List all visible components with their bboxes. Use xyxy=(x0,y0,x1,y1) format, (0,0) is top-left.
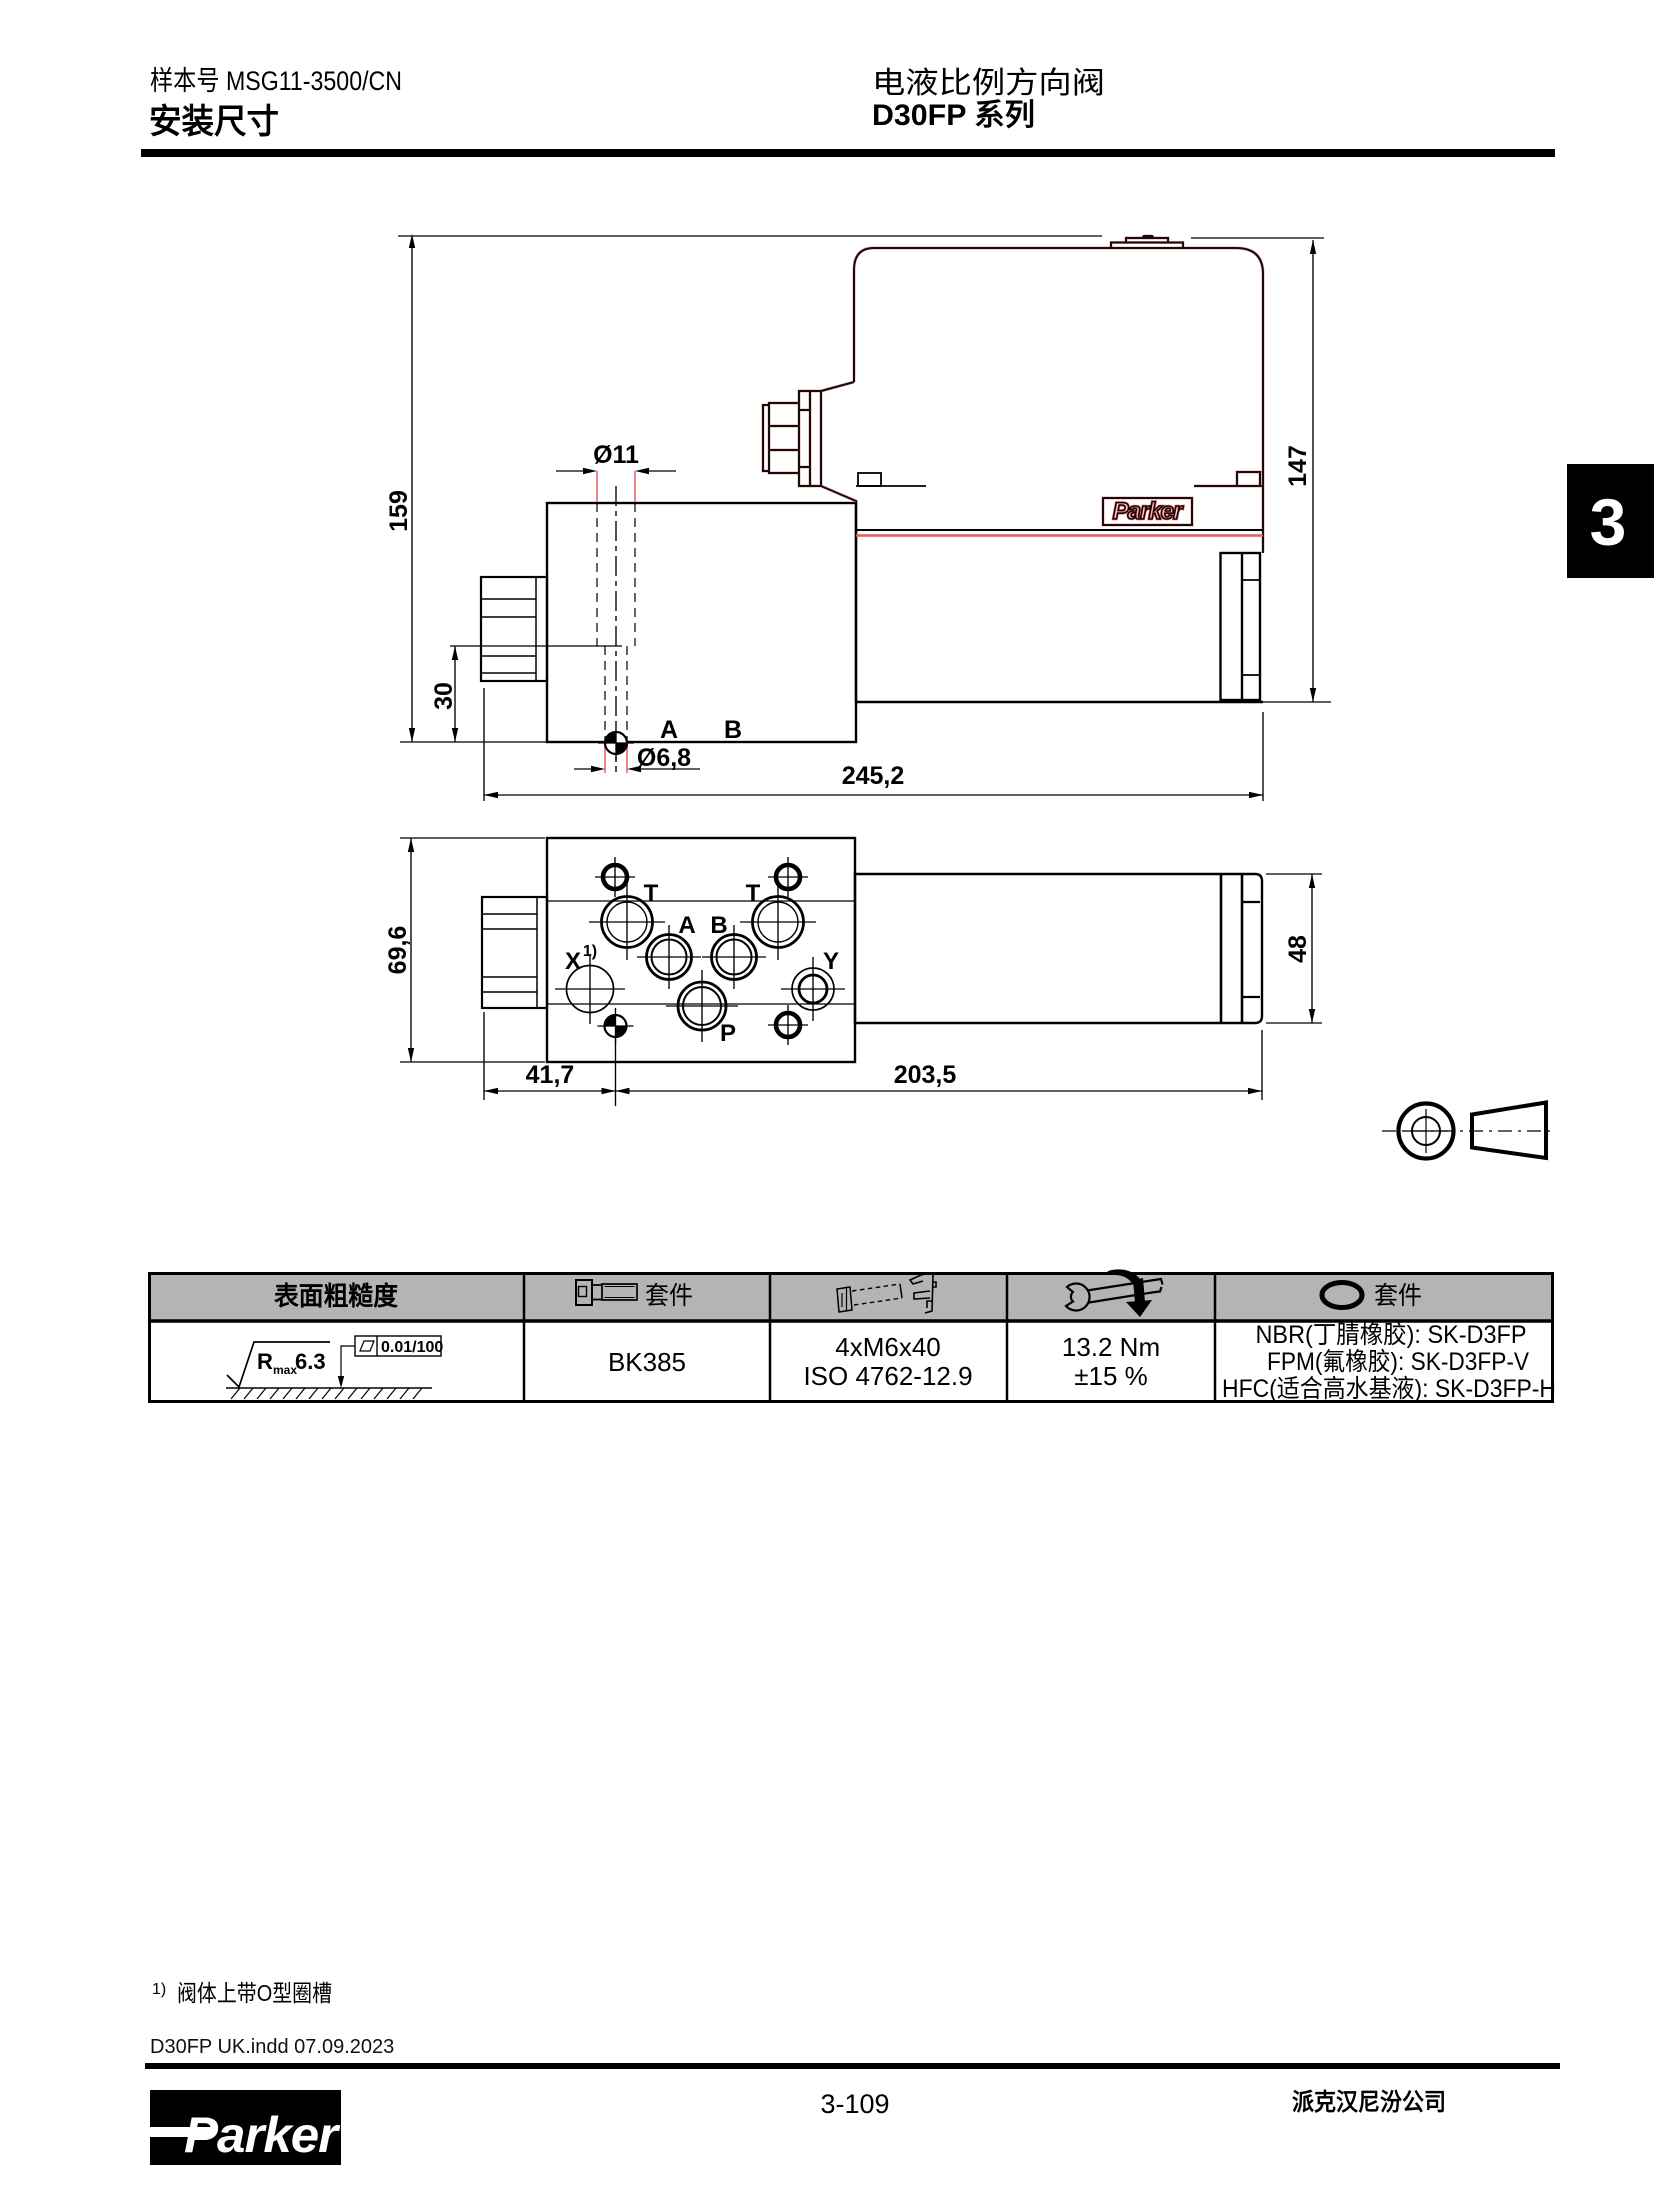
svg-text:B: B xyxy=(724,716,742,744)
svg-text:阀体上带O型圈槽: 阀体上带O型圈槽 xyxy=(177,1980,332,2006)
svg-text:NBR(丁腈橡胶): SK-D3FP: NBR(丁腈橡胶): SK-D3FP xyxy=(1256,1321,1527,1349)
svg-text:样本号 MSG11-3500/CN: 样本号 MSG11-3500/CN xyxy=(150,66,402,96)
svg-text:69,6: 69,6 xyxy=(384,926,412,975)
svg-text:套件: 套件 xyxy=(645,1282,693,1310)
svg-text:表面粗糙度: 表面粗糙度 xyxy=(274,1281,398,1311)
svg-text:max: max xyxy=(273,1363,297,1377)
svg-text:T: T xyxy=(644,880,659,907)
svg-text:0.01/100: 0.01/100 xyxy=(381,1339,443,1356)
svg-text:48: 48 xyxy=(1284,935,1312,963)
svg-text:Y: Y xyxy=(823,948,839,975)
svg-text:30: 30 xyxy=(430,682,458,710)
svg-text:安装尺寸: 安装尺寸 xyxy=(149,103,279,141)
svg-text:A: A xyxy=(678,912,695,939)
svg-text:159: 159 xyxy=(385,490,413,532)
svg-text:P: P xyxy=(720,1020,736,1047)
svg-text:3: 3 xyxy=(1590,485,1627,559)
svg-text:套件: 套件 xyxy=(1374,1282,1422,1310)
svg-text:4xM6x40: 4xM6x40 xyxy=(835,1332,941,1362)
svg-text:±15 %: ±15 % xyxy=(1074,1361,1148,1391)
svg-text:电液比例方向阀: 电液比例方向阀 xyxy=(872,67,1105,100)
svg-text:1): 1) xyxy=(583,943,597,960)
svg-text:HFC(适合高水基液): SK-D3FP-H: HFC(适合高水基液): SK-D3FP-H xyxy=(1222,1375,1556,1403)
svg-text:Ø6,8: Ø6,8 xyxy=(637,744,691,772)
svg-text:D30FP 系列: D30FP 系列 xyxy=(872,99,1035,132)
svg-text:X: X xyxy=(565,948,581,975)
svg-text:6.3: 6.3 xyxy=(295,1349,326,1374)
svg-text:B: B xyxy=(710,912,727,939)
svg-text:R: R xyxy=(257,1349,273,1374)
svg-text:ISO 4762-12.9: ISO 4762-12.9 xyxy=(803,1361,972,1391)
svg-text:13.2 Nm: 13.2 Nm xyxy=(1062,1332,1160,1362)
svg-text:BK385: BK385 xyxy=(608,1347,686,1377)
svg-text:1): 1) xyxy=(152,1981,166,1998)
svg-text:3-109: 3-109 xyxy=(820,2089,889,2119)
svg-text:Parker: Parker xyxy=(184,2107,341,2163)
svg-text:203,5: 203,5 xyxy=(894,1061,957,1089)
svg-text:FPM(氟橡胶): SK-D3FP-V: FPM(氟橡胶): SK-D3FP-V xyxy=(1267,1348,1529,1376)
svg-text:A: A xyxy=(660,716,678,744)
svg-text:派克汉尼汾公司: 派克汉尼汾公司 xyxy=(1292,2089,1446,2116)
svg-text:Ø11: Ø11 xyxy=(593,441,639,469)
svg-text:41,7: 41,7 xyxy=(526,1061,575,1089)
svg-text:245,2: 245,2 xyxy=(842,762,905,790)
svg-text:Parker: Parker xyxy=(1113,498,1184,525)
svg-text:D30FP UK.indd 07.09.2023: D30FP UK.indd 07.09.2023 xyxy=(150,2036,394,2058)
svg-text:T: T xyxy=(746,880,761,907)
svg-text:147: 147 xyxy=(1284,445,1312,487)
